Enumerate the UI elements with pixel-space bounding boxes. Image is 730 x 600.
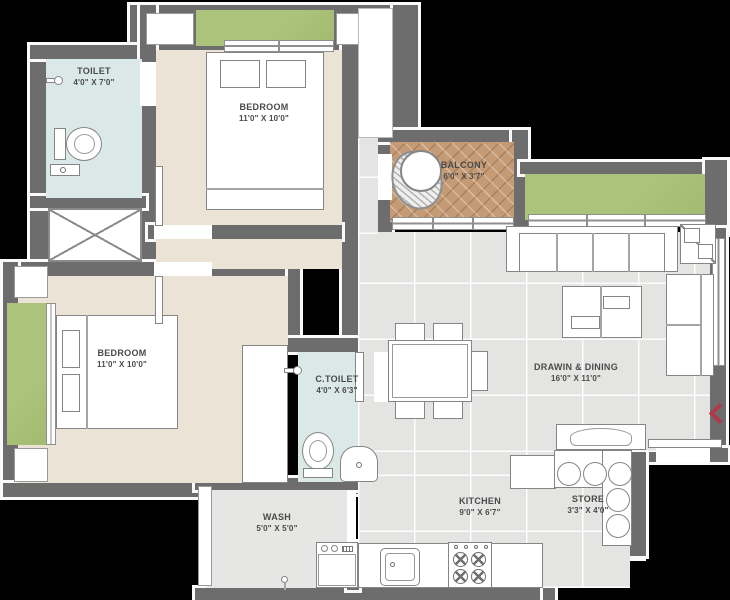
- room-label-bedroom1: BEDROOM 11'0" X 10'0": [196, 102, 332, 124]
- wall: [393, 5, 418, 148]
- tap-icon: [281, 576, 288, 583]
- room-name: WASH: [217, 512, 337, 522]
- wall-niche: [14, 266, 48, 298]
- wash-door-leaf: [347, 492, 356, 542]
- room-dims: 5'0" X 5'0": [217, 524, 337, 533]
- window-divider: [278, 40, 280, 52]
- washing-machine-drum: [318, 554, 356, 586]
- wall: [520, 162, 710, 174]
- pillow-icon: [266, 60, 306, 88]
- wall: [705, 160, 727, 234]
- wall: [630, 448, 646, 556]
- dining-table-icon: [392, 344, 468, 398]
- corner-table-icon: [684, 228, 700, 243]
- container-icon: [583, 462, 607, 486]
- burner-icon: [471, 569, 486, 584]
- wardrobe-icon: [242, 345, 288, 483]
- room-label-wash: WASH 5'0" X 5'0": [217, 512, 337, 534]
- room-label-bedroom2: BEDROOM 11'0" X 10'0": [52, 348, 192, 370]
- wall: [30, 45, 146, 59]
- window: [46, 303, 56, 445]
- coffee-table-icon: [562, 286, 642, 338]
- dining-chair-icon: [433, 401, 463, 419]
- wall-niche: [14, 448, 48, 482]
- room-label-drawing-dining: DRAWIN & DINING 16'0" X 11'0": [496, 362, 656, 384]
- tv-unit-icon: [570, 428, 632, 446]
- floor-plan: TOILET 4'0" X 7'0" BEDROOM 11'0" X 10'0"…: [0, 0, 730, 600]
- entrance-door-leaf: [648, 439, 722, 448]
- coffee-table-icon: [571, 316, 600, 329]
- room-dims: 11'0" X 10'0": [196, 114, 332, 123]
- washing-machine-dial: [321, 545, 328, 552]
- room-name: STORE: [545, 494, 631, 504]
- burner-icon: [453, 569, 468, 584]
- entrance-door-opening: [656, 448, 710, 462]
- wc-icon: [54, 128, 66, 160]
- drain-icon: [390, 562, 395, 567]
- pillow-icon: [62, 374, 80, 412]
- container-icon: [608, 462, 632, 486]
- coffee-table-icon: [603, 296, 630, 309]
- bedroom1-door-leaf: [155, 166, 163, 226]
- container-icon: [606, 514, 630, 538]
- wc-icon: [309, 440, 327, 462]
- balcony-door-opening: [378, 154, 392, 200]
- fridge-icon: [510, 455, 556, 489]
- room-label-kitchen: KITCHEN 9'0" X 6'7": [410, 496, 550, 518]
- wall-pilaster: [198, 486, 212, 586]
- washing-machine-dial: [331, 545, 338, 552]
- duct-cross-icon: [48, 208, 142, 262]
- drain-icon: [60, 167, 66, 173]
- sofa-divider: [592, 233, 594, 272]
- room-name: BEDROOM: [196, 102, 332, 112]
- stove-knob: [464, 545, 468, 549]
- open-area: [358, 8, 393, 138]
- room-name: TOILET: [44, 66, 144, 76]
- container-icon: [557, 462, 581, 486]
- sofa-divider: [628, 233, 630, 272]
- balcony-railing: [392, 217, 514, 230]
- burner-icon: [453, 552, 468, 567]
- wall: [3, 483, 203, 497]
- wc-icon: [303, 468, 333, 478]
- wall: [195, 588, 555, 600]
- wall: [342, 45, 358, 338]
- lawn-strip-left: [7, 303, 48, 445]
- room-label-toilet: TOILET 4'0" X 7'0": [44, 66, 144, 88]
- dining-chair-icon: [395, 401, 425, 419]
- room-dims: 11'0" X 10'0": [52, 360, 192, 369]
- balcony-passage-floor: [358, 136, 378, 234]
- room-name: C.TOILET: [288, 374, 386, 384]
- pillow-icon: [220, 60, 260, 88]
- wc-icon: [74, 134, 95, 154]
- dining-chair-icon: [471, 351, 488, 391]
- sofa-divider: [666, 324, 702, 326]
- room-dims: 9'0" X 6'7": [410, 508, 550, 517]
- room-name: DRAWIN & DINING: [496, 362, 656, 372]
- room-name: BALCONY: [410, 160, 518, 170]
- room-dims: 16'0" X 11'0": [496, 374, 656, 383]
- bedroom1-door-opening: [154, 225, 212, 239]
- drain-icon: [356, 462, 362, 468]
- stove-knob: [474, 545, 478, 549]
- wall: [378, 130, 528, 142]
- washing-machine-tray: [342, 546, 353, 552]
- bed-fold-line: [86, 315, 88, 429]
- window-divider: [472, 217, 474, 230]
- corner-table-icon: [698, 244, 713, 259]
- room-dims: 4'0" X 6'3": [288, 386, 386, 395]
- room-name: BEDROOM: [52, 348, 192, 358]
- coffee-table-divider: [600, 286, 602, 338]
- burner-icon: [471, 552, 486, 567]
- window-divider: [432, 217, 434, 230]
- room-dims: 6'0" X 3'7": [410, 172, 518, 181]
- room-label-store: STORE 3'3" X 4'0": [545, 494, 631, 516]
- bedroom2-door-opening: [154, 262, 212, 276]
- sink-icon: [385, 553, 415, 581]
- bed-fold-line: [206, 188, 324, 190]
- sofa-divider: [556, 233, 558, 272]
- bedroom2-door-leaf: [155, 276, 163, 324]
- room-name: KITCHEN: [410, 496, 550, 506]
- stove-knob: [454, 545, 458, 549]
- room-label-ctoilet: C.TOILET 4'0" X 6'3": [288, 374, 386, 396]
- wall-niche: [146, 13, 194, 45]
- room-label-balcony: BALCONY 6'0" X 3'7": [410, 160, 518, 182]
- tap-icon: [284, 583, 286, 590]
- dining-chair-icon: [433, 323, 463, 341]
- dining-chair-icon: [395, 323, 425, 341]
- stove-knob: [484, 545, 488, 549]
- room-dims: 3'3" X 4'0": [545, 506, 631, 515]
- room-dims: 4'0" X 7'0": [44, 78, 144, 87]
